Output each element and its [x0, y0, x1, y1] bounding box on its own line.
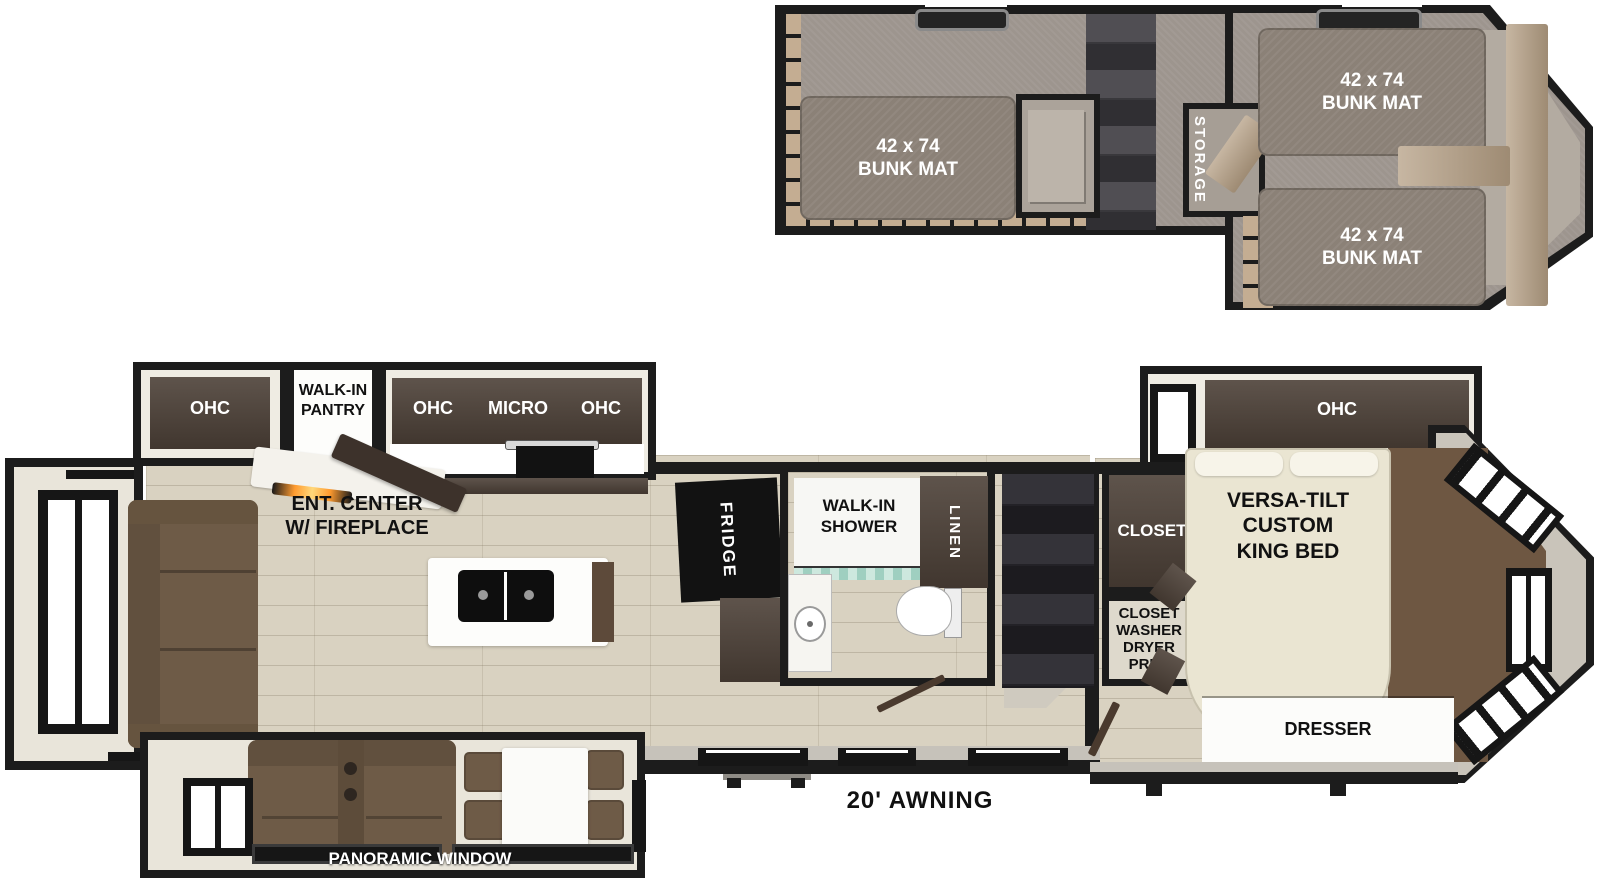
- rear-slide-top-glazing: [66, 470, 134, 479]
- dinette-chair: [586, 750, 624, 790]
- living-slide-left-window-pane: [191, 786, 215, 848]
- toilet-bowl: [896, 586, 952, 636]
- shower-label: WALK-IN SHOWER: [794, 486, 924, 548]
- bay-window-middle-pane: [1531, 576, 1545, 664]
- theater-seat-line: [262, 816, 338, 819]
- bunk-mat-left-label: 42 x 74 BUNK MAT: [800, 96, 1016, 220]
- vanity-sink-drain: [807, 621, 813, 627]
- fridge-label: FRIDGE: [709, 487, 744, 592]
- pantry-label: WALK-IN PANTRY: [290, 372, 376, 430]
- cooktop: [516, 446, 594, 478]
- sink-divider: [504, 572, 507, 620]
- staircase: [1002, 474, 1094, 688]
- loft-rail-left: [786, 14, 801, 226]
- landing-gear-foot: [1330, 784, 1346, 796]
- bay-window-middle-pane: [1512, 576, 1526, 664]
- island-wood-side: [592, 562, 614, 642]
- skylight-icon: [915, 9, 1009, 31]
- awning-label: 20' AWNING: [790, 784, 1050, 818]
- cupholder-icon: [344, 788, 357, 801]
- landing-gear-foot: [1146, 784, 1162, 796]
- sofa-arm-top: [128, 500, 258, 524]
- loft-top-window-slit-right: [1342, 2, 1422, 7]
- dresser-label: DRESSER: [1202, 698, 1454, 762]
- sofa-back: [128, 500, 160, 748]
- loft-top-window-slit-left: [925, 2, 1007, 7]
- bed-pillow: [1290, 452, 1378, 476]
- bunk-divider-vertical: [1506, 24, 1548, 306]
- bedroom-slide-window-pane: [1158, 392, 1188, 454]
- faucet-dot: [524, 590, 534, 600]
- entry-door-window-slit: [976, 750, 1060, 753]
- bed-pillow: [1195, 452, 1283, 476]
- dinette-table: [502, 748, 588, 848]
- ent-center-label: ENT. CENTER W/ FIREPLACE: [252, 492, 462, 540]
- storage-label: STORAGE: [1188, 112, 1210, 208]
- bunk-mat-top-right-label: 42 x 74 BUNK MAT: [1258, 28, 1486, 156]
- cupholder-icon: [344, 762, 357, 775]
- bedroom-bottom-wall-face: [1090, 762, 1458, 772]
- rear-window-pane: [82, 500, 109, 724]
- bed-label: VERSA-TILT CUSTOM KING BED: [1190, 484, 1386, 568]
- door-side-window-slit: [846, 750, 908, 753]
- dinette-chair: [586, 800, 624, 840]
- rear-window-pane: [48, 500, 75, 724]
- bunk-divider-shelf: [1398, 146, 1510, 186]
- faucet-dot: [478, 590, 488, 600]
- loft-area: STORAGE 42 x 74 BUNK MAT 42 x 74 BUNK MA…: [0, 0, 1600, 330]
- linen-label: LINEN: [942, 486, 966, 578]
- rear-ohc-label: OHC: [150, 377, 270, 441]
- sofa-cushion-line: [160, 570, 256, 573]
- door-side-window-slit: [706, 750, 800, 753]
- rv-floorplan: STORAGE 42 x 74 BUNK MAT 42 x 74 BUNK MA…: [0, 0, 1600, 893]
- kitchen-ohc-right-label: OHC: [566, 382, 636, 436]
- loft-stair-landing-inner: [1028, 110, 1084, 202]
- kitchen-micro-label: MICRO: [478, 382, 558, 436]
- kitchen-ohc-left-label: OHC: [398, 382, 468, 436]
- entry-step-foot: [727, 778, 741, 788]
- bunk-mat-bottom-right-label: 42 x 74 BUNK MAT: [1258, 188, 1486, 306]
- cabinet-below-fridge: [720, 598, 780, 682]
- living-slide-left-window-pane: [221, 786, 245, 848]
- theater-seat-line: [366, 816, 442, 819]
- sofa-cushion-line: [160, 648, 256, 651]
- panoramic-window-label: PANORAMIC WINDOW: [255, 848, 585, 870]
- living-slide-right-window: [632, 780, 646, 852]
